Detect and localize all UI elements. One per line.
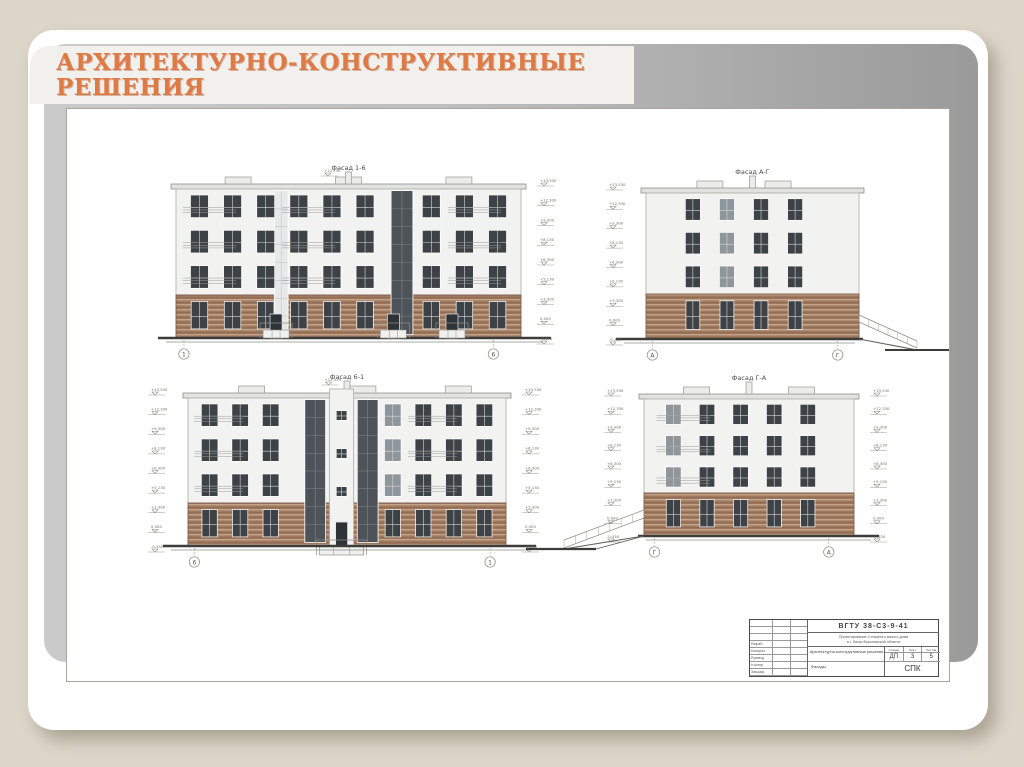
svg-text:0,000: 0,000 bbox=[151, 524, 162, 529]
sheets-value: 5 bbox=[922, 653, 940, 661]
stage-values: ДП 3 5 bbox=[885, 653, 940, 662]
title-strip: АРХИТЕКТУРНО-КОНСТРУКТИВНЫЕ РЕШЕНИЯ bbox=[30, 46, 634, 104]
svg-text:+13,530: +13,530 bbox=[324, 168, 341, 173]
svg-text:+13,530: +13,530 bbox=[607, 388, 624, 393]
sheet-value: 3 bbox=[904, 653, 923, 661]
svg-text:+3,300: +3,300 bbox=[873, 497, 888, 502]
title-block-row: Разраб. bbox=[750, 641, 807, 648]
page-title: АРХИТЕКТУРНО-КОНСТРУКТИВНЫЕ РЕШЕНИЯ bbox=[30, 46, 634, 100]
facade-g-a: Фасад Г-АГА+13,530+12,330+9,300+8,130+6,… bbox=[526, 374, 890, 557]
svg-text:+6,300: +6,300 bbox=[540, 257, 555, 262]
svg-text:+6,300: +6,300 bbox=[607, 461, 622, 466]
title-block-row: Н.контр. bbox=[750, 662, 807, 669]
svg-text:+12,330: +12,330 bbox=[873, 406, 890, 411]
title-block-row: Зав.каф. bbox=[750, 669, 807, 676]
svg-text:+9,300: +9,300 bbox=[873, 424, 888, 429]
drawing-sheet: Фасад 1-616+13,530+12,330+9,300+8,130+6,… bbox=[66, 108, 950, 682]
title-block-project: Проектирование 4-этажного жилого дома в … bbox=[807, 633, 939, 647]
facade-drawings: Фасад 1-616+13,530+12,330+9,300+8,130+6,… bbox=[67, 109, 949, 681]
page-title-line1: АРХИТЕКТУРНО-КОНСТРУКТИВНЫЕ bbox=[56, 49, 585, 76]
svg-text:-0,450: -0,450 bbox=[607, 534, 620, 539]
title-block-divider bbox=[772, 620, 773, 676]
project-line1: Проектирование 4-этажного жилого дома bbox=[839, 635, 908, 639]
svg-text:6: 6 bbox=[192, 559, 196, 566]
sheets-label: Листов bbox=[922, 647, 940, 652]
title-block-row: Консульт. bbox=[750, 648, 807, 655]
title-block-row bbox=[750, 620, 807, 627]
svg-text:+8,130: +8,130 bbox=[607, 443, 622, 448]
sheet-label: Лист bbox=[904, 647, 923, 652]
svg-text:1: 1 bbox=[182, 351, 186, 358]
svg-text:0,000: 0,000 bbox=[540, 316, 551, 321]
title-block-row bbox=[750, 634, 807, 641]
svg-text:+8,130: +8,130 bbox=[540, 237, 555, 242]
svg-text:+5,130: +5,130 bbox=[151, 485, 166, 490]
facade-a-g: Фасад А-ГАГ+13,530+12,330+9,300+8,130+6,… bbox=[606, 168, 949, 360]
svg-text:+9,300: +9,300 bbox=[151, 426, 166, 431]
title-block-row: Руковод. bbox=[750, 655, 807, 662]
svg-text:+9,300: +9,300 bbox=[540, 217, 555, 222]
svg-text:+3,300: +3,300 bbox=[525, 505, 540, 510]
svg-text:+9,300: +9,300 bbox=[609, 221, 624, 226]
svg-text:+9,300: +9,300 bbox=[525, 426, 540, 431]
org-code: СПК bbox=[885, 662, 940, 676]
svg-text:-0,450: -0,450 bbox=[540, 336, 553, 341]
stage-value: ДП bbox=[885, 653, 904, 661]
doc-title: Архитектурно-конструктивные решения bbox=[808, 647, 885, 662]
title-block-doc: Архитектурно-конструктивные решения Фаса… bbox=[807, 647, 884, 676]
svg-text:+13,530: +13,530 bbox=[525, 387, 542, 392]
svg-text:+13,530: +13,530 bbox=[540, 178, 557, 183]
svg-text:+6,300: +6,300 bbox=[151, 465, 166, 470]
svg-text:+5,130: +5,130 bbox=[540, 277, 555, 282]
svg-text:+6,300: +6,300 bbox=[873, 461, 888, 466]
svg-text:+12,330: +12,330 bbox=[525, 406, 542, 411]
svg-text:+8,130: +8,130 bbox=[525, 446, 540, 451]
svg-text:Г: Г bbox=[653, 549, 657, 556]
title-block-divider bbox=[790, 620, 791, 676]
title-block-signatures: Разраб.Консульт.Руковод.Н.контр.Зав.каф. bbox=[750, 620, 807, 676]
svg-text:Фасад Г-А: Фасад Г-А bbox=[732, 374, 767, 382]
svg-text:0,000: 0,000 bbox=[873, 516, 884, 521]
stage-label: Стадия bbox=[885, 647, 904, 652]
svg-text:+12,330: +12,330 bbox=[607, 406, 624, 411]
facade-1-6: Фасад 1-616+13,530+12,330+9,300+8,130+6,… bbox=[158, 164, 557, 359]
page-title-line2: РЕШЕНИЯ bbox=[56, 74, 205, 101]
svg-text:Фасад А-Г: Фасад А-Г bbox=[735, 168, 769, 176]
svg-text:+3,300: +3,300 bbox=[607, 497, 622, 502]
title-block: ВГТУ 38-С3-9-41 Проектирование 4-этажног… bbox=[749, 619, 939, 677]
svg-text:+9,300: +9,300 bbox=[607, 424, 622, 429]
svg-text:+12,330: +12,330 bbox=[609, 201, 626, 206]
svg-text:+13,530: +13,530 bbox=[873, 388, 890, 393]
svg-text:+6,300: +6,300 bbox=[525, 465, 540, 470]
svg-text:+8,130: +8,130 bbox=[151, 446, 166, 451]
title-block-code: ВГТУ 38-С3-9-41 bbox=[807, 620, 939, 633]
doc-subtitle: Фасады bbox=[808, 662, 885, 676]
svg-text:+12,330: +12,330 bbox=[540, 198, 557, 203]
svg-text:+8,130: +8,130 bbox=[609, 240, 624, 245]
svg-text:+13,530: +13,530 bbox=[325, 377, 342, 382]
svg-text:0,000: 0,000 bbox=[525, 524, 536, 529]
svg-text:+5,130: +5,130 bbox=[873, 479, 888, 484]
svg-text:-0,450: -0,450 bbox=[609, 337, 622, 342]
svg-text:+5,130: +5,130 bbox=[525, 485, 540, 490]
svg-text:-0,450: -0,450 bbox=[151, 544, 164, 549]
svg-text:+13,530: +13,530 bbox=[151, 387, 168, 392]
svg-text:+5,130: +5,130 bbox=[607, 479, 622, 484]
svg-text:+13,530: +13,530 bbox=[609, 182, 626, 187]
svg-text:+3,300: +3,300 bbox=[540, 296, 555, 301]
project-line2: в г. Лиски Воронежской области bbox=[847, 640, 900, 644]
title-block-stage: Стадия Лист Листов ДП 3 5 СПК bbox=[884, 647, 939, 676]
svg-text:А: А bbox=[650, 352, 655, 359]
svg-text:Г: Г bbox=[836, 352, 840, 359]
svg-text:+6,300: +6,300 bbox=[609, 259, 624, 264]
facade-6-1: Фасад 6-161+13,530+12,330+9,300+8,130+6,… bbox=[148, 373, 542, 567]
svg-text:0,000: 0,000 bbox=[609, 317, 620, 322]
svg-text:А: А bbox=[827, 549, 832, 556]
svg-text:+5,130: +5,130 bbox=[609, 279, 624, 284]
svg-text:+3,300: +3,300 bbox=[151, 505, 166, 510]
svg-text:-0,450: -0,450 bbox=[873, 534, 886, 539]
title-block-row bbox=[750, 627, 807, 634]
svg-text:+12,330: +12,330 bbox=[151, 406, 168, 411]
svg-text:6: 6 bbox=[491, 351, 495, 358]
svg-text:+8,130: +8,130 bbox=[873, 443, 888, 448]
slide-card: АРХИТЕКТУРНО-КОНСТРУКТИВНЫЕ РЕШЕНИЯ Фаса… bbox=[28, 30, 988, 730]
svg-text:1: 1 bbox=[488, 559, 492, 566]
svg-text:+3,300: +3,300 bbox=[609, 298, 624, 303]
